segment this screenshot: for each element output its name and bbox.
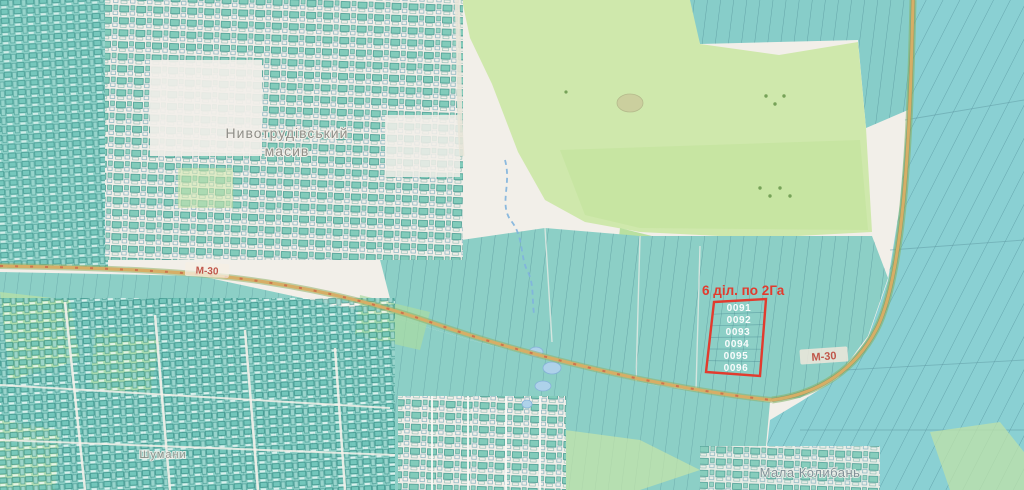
highway-label-left: М-30 <box>185 262 230 278</box>
map-canvas[interactable]: М-30 М-30 Нивотрудівський масив Шумани М… <box>0 0 1024 490</box>
massif-label-line1: Нивотрудівський <box>226 125 349 141</box>
parcel-number: 0092 <box>727 315 752 326</box>
highway-shield-text: М-30 <box>195 265 219 277</box>
dry-pond <box>617 94 643 112</box>
parcel-number: 0095 <box>724 351 749 362</box>
map-viewport[interactable]: М-30 М-30 Нивотрудівський масив Шумани М… <box>0 0 1024 490</box>
annotation-title: 6 діл. по 2Га <box>702 283 785 298</box>
massif-label-line2: масив <box>265 143 310 159</box>
village-label-se: Мала Колибань <box>760 465 861 480</box>
parcel-number: 0091 <box>727 303 752 314</box>
village-label-sw: Шумани <box>139 449 186 461</box>
highway-shield-text: М-30 <box>811 350 837 364</box>
parcel-number: 0096 <box>724 363 749 374</box>
parcel-number: 0093 <box>726 327 751 338</box>
parcel-number: 0094 <box>725 339 750 350</box>
